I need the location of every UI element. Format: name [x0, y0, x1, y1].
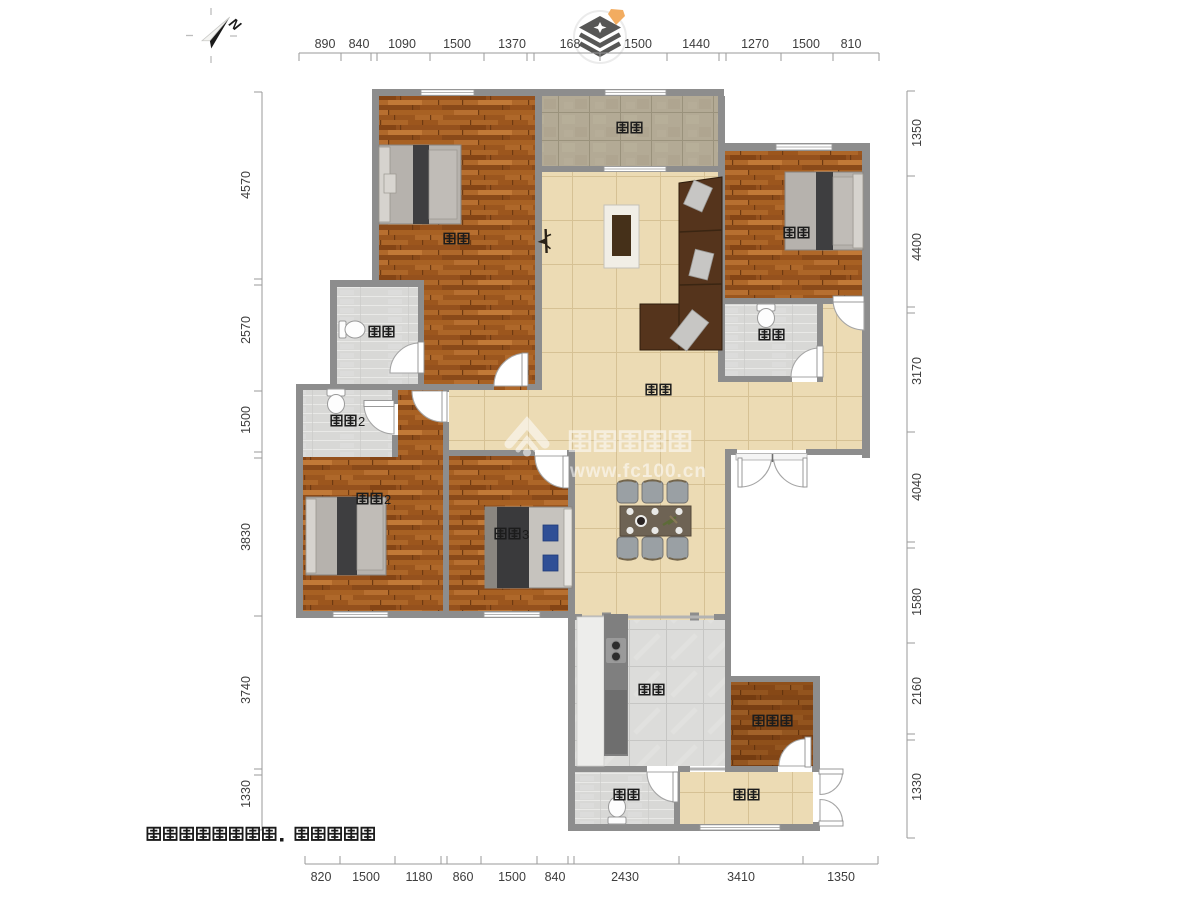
svg-text:3170: 3170 [910, 357, 924, 385]
svg-text:168: 168 [560, 37, 581, 51]
svg-text:1330: 1330 [910, 773, 924, 801]
svg-text:1500: 1500 [443, 37, 471, 51]
svg-text:3410: 3410 [727, 870, 755, 884]
svg-text:2: 2 [384, 492, 391, 507]
svg-text:1270: 1270 [741, 37, 769, 51]
svg-text:820: 820 [311, 870, 332, 884]
svg-text:810: 810 [841, 37, 862, 51]
svg-text:2: 2 [358, 414, 365, 429]
svg-text:1500: 1500 [498, 870, 526, 884]
svg-text:1090: 1090 [388, 37, 416, 51]
svg-text:1500: 1500 [352, 870, 380, 884]
svg-text:2160: 2160 [910, 677, 924, 705]
svg-text:1580: 1580 [910, 588, 924, 616]
svg-text:2430: 2430 [611, 870, 639, 884]
svg-text:2570: 2570 [239, 316, 253, 344]
svg-text:4040: 4040 [910, 473, 924, 501]
svg-text:1500: 1500 [239, 406, 253, 434]
svg-text:840: 840 [349, 37, 370, 51]
svg-text:4570: 4570 [239, 171, 253, 199]
svg-text:www.fc100.cn: www.fc100.cn [569, 461, 707, 482]
svg-text:1350: 1350 [827, 870, 855, 884]
svg-text:3: 3 [522, 527, 529, 542]
svg-text:1330: 1330 [239, 780, 253, 808]
svg-text:3830: 3830 [239, 523, 253, 551]
svg-text:1500: 1500 [792, 37, 820, 51]
svg-text:3740: 3740 [239, 676, 253, 704]
svg-text:840: 840 [545, 870, 566, 884]
svg-text:860: 860 [453, 870, 474, 884]
svg-text:1350: 1350 [910, 119, 924, 147]
svg-text:1440: 1440 [682, 37, 710, 51]
svg-text:1370: 1370 [498, 37, 526, 51]
svg-text:1180: 1180 [406, 870, 433, 884]
svg-text:1500: 1500 [624, 37, 652, 51]
svg-text:890: 890 [315, 37, 336, 51]
svg-text:4400: 4400 [910, 233, 924, 261]
